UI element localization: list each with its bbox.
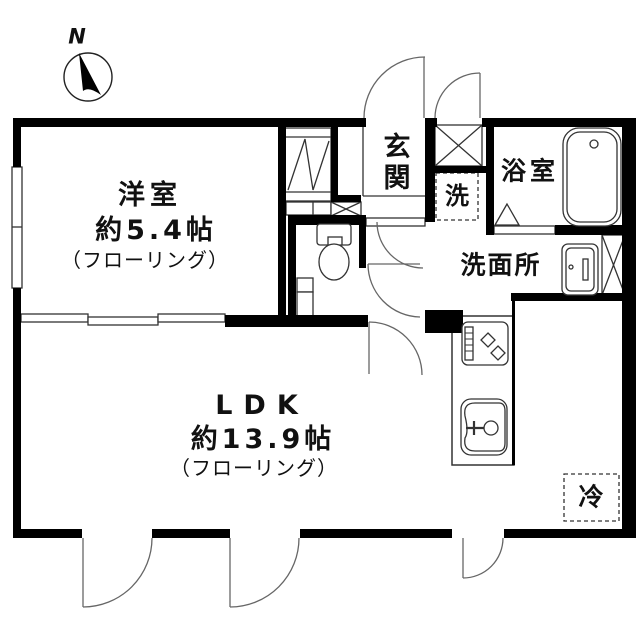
washer-label: 洗 (445, 183, 469, 209)
balcony-door-left (83, 538, 152, 607)
ldk-label: LDK (215, 391, 309, 421)
pipe-shaft (602, 235, 625, 295)
toilet-shelf (297, 278, 313, 316)
ldk-size: 約13.9帖 (191, 425, 336, 455)
meter-box (435, 125, 482, 166)
hall-upper-door (377, 222, 423, 268)
ldk-floor: （フローリング） (170, 457, 338, 479)
kitchen-sink-icon (461, 399, 507, 455)
refrigerator-label: 冷 (578, 483, 603, 511)
hall-lower-door (368, 264, 420, 317)
bathtub-icon (563, 128, 621, 226)
compass-north-label: N (68, 25, 86, 48)
entrance-label: 玄関 (382, 132, 412, 194)
toilet-icon (317, 224, 351, 280)
ldk-door (369, 322, 422, 375)
storage-door (435, 73, 480, 118)
entrance-door (364, 57, 425, 118)
bathroom-label: 浴室 (501, 157, 559, 185)
balcony-door-right (230, 538, 299, 607)
floorplan-drawing (0, 0, 640, 640)
floorplan-page: N 洋室 約5.4帖 （フローリング） LDK 約13.9帖 （フローリング） … (0, 0, 640, 640)
closet (285, 128, 331, 201)
compass-icon (64, 53, 112, 101)
western-room-size: 約5.4帖 (95, 216, 217, 246)
gas-stove-icon (462, 322, 508, 365)
pipe-shaft-small (331, 202, 361, 216)
sliding-door-western-ldk (21, 314, 225, 325)
washbasin-icon (562, 244, 598, 295)
western-room-label: 洋室 (118, 181, 182, 211)
western-room-floor: （フローリング） (61, 249, 229, 271)
cabinet (286, 202, 331, 215)
washroom-label: 洗面所 (460, 251, 541, 279)
bathroom-door (494, 204, 555, 234)
kitchen-back-door (463, 538, 503, 578)
window-left (12, 167, 22, 288)
